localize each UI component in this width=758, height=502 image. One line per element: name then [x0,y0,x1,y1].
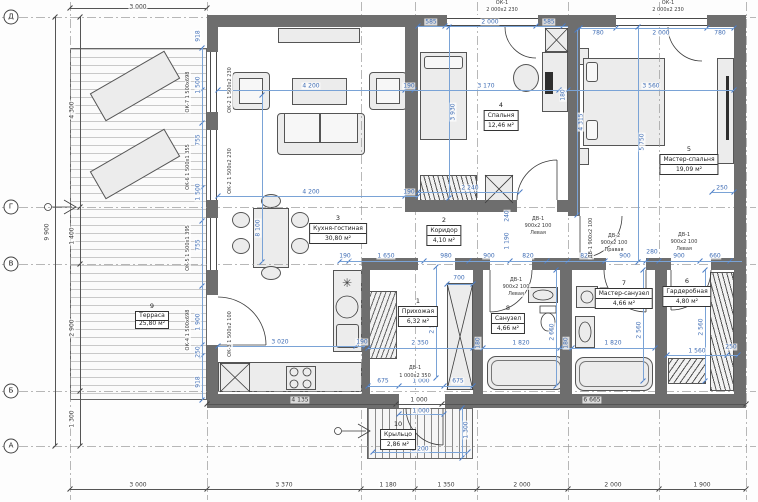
dimension-label: 1 560 [687,348,706,355]
dimension-label: 6 665 [582,397,601,404]
room-number: 4 [484,102,519,109]
dimension-label: 190 [355,339,368,346]
entry-arrow [342,424,370,438]
room-label-porch: 10 Крыльцо2,86 м² [380,421,416,450]
dimension-label: 8 100 [255,218,262,237]
dimension-line [712,192,734,193]
dimension-label: 675 [376,378,389,385]
room-label-terrace: 9 Терраса25,80 м² [135,303,169,329]
wardrobe-hangers [710,272,734,391]
dimension-line [202,48,203,400]
opening-label: Правая [603,247,624,253]
dimension-label: 900 [482,253,495,260]
room-area: 19,09 м² [660,165,717,174]
opening-label: ОК-6 1 500х1 355 [185,143,191,191]
dimension-label: 4 300 [69,100,76,119]
dimension-line [418,192,520,193]
opening-label: 2 000х2 230 [485,7,519,13]
room-name: Мастер-спальня [660,155,717,165]
opening-label: 1 000х2 350 [398,373,432,379]
dimension-label: 3 170 [476,83,495,90]
dimension-label: 1 350 [436,482,455,489]
washbasin [575,316,595,348]
dining-chair [261,266,281,280]
opening-label: ОК-2 1 500х2 230 [227,147,233,195]
dimension-line [207,404,746,405]
dimension-label: 900 [618,253,631,260]
dimension-label: 2 560 [636,320,643,339]
opening-label: Левая [529,230,547,236]
dimension-label: 4 200 [301,189,320,196]
dimension-label: 250 [715,185,728,192]
dimension-line [262,95,263,262]
dimension-label: 980 [439,253,452,260]
floor-plan: ✳ 9 Терраса25,80 м² 3 Кухня-гостиная30,8… [0,0,758,502]
dimension-line [447,284,473,285]
dimension-label: 1 900 [692,482,711,489]
sofa-seat [320,113,358,143]
room-name: Прихожая [399,307,437,317]
dimension-label: 3 930 [450,102,457,121]
dimension-label: 9 900 [44,222,51,241]
opening-label: 900х2 100 [524,223,553,229]
opening-label: ОК-4 1 500х698 [185,309,191,352]
dimension-label: 2 900 [69,318,76,337]
dimension-label: 190 [402,83,415,90]
room-name: Спальня [485,111,518,121]
dimension-label: 1 300 [69,409,76,428]
dimension-label: 1 500 [195,182,202,201]
room-area: 4,66 м² [596,299,652,308]
opening-label: ОК-5 1 500х1 395 [185,224,191,272]
dimension-label: 2 000 [480,19,499,26]
dimension-label: 2 000 [651,30,670,37]
room-name: Мастер-санузел [596,289,652,299]
opening-label: Левая [507,291,525,297]
dimension-label: 1 000 [409,397,428,404]
opening-label: Левая [675,246,693,252]
dimension-line [70,489,746,490]
dimension-label: 2 660 [549,322,556,341]
dimension-label: 918 [195,375,202,388]
room-number: 5 [659,146,718,153]
dimension-label: 1 000 [411,408,430,415]
dining-chair [291,212,309,228]
corner-cabinet [220,363,250,392]
pillow [586,120,598,140]
stove [286,366,316,390]
room-area: 4,10 м² [427,236,460,245]
entry-arrow [335,428,342,435]
axis-line-vertical [477,2,478,500]
window-ok1 [616,15,707,27]
dining-chair [232,212,250,228]
room-label-wardrobe: 6 Гардеробная4,80 м² [662,278,711,307]
dimension-line [218,346,365,347]
dimension-label: 3 370 [274,482,293,489]
dimension-label: 755 [195,133,202,146]
opening-label: ОК-3 1 500х2 100 [227,310,233,358]
room-number: 8 [491,305,525,312]
axis-line-vertical [746,2,747,500]
room-label-corridor: 2 Коридор4,10 м² [426,217,461,246]
dimension-label: 900 [672,253,685,260]
tall-cabinet [447,283,473,390]
dimension-label: 2 000 [512,482,531,489]
room-number: 9 [135,303,169,310]
desk-chair [513,64,539,92]
room-number: 10 [380,421,416,428]
room-area: 30,80 м² [310,234,366,243]
room-name: Санузел [492,314,524,324]
dining-chair [232,238,250,254]
opening-label: ДВ-1 [509,277,523,283]
axis-line-horizontal [2,207,756,208]
room-number: 7 [595,280,653,287]
dimension-label: 250 [724,344,737,351]
opening-label: ДВ-1 [531,216,545,222]
dimension-line [418,26,568,27]
axis-bubble: А [4,439,19,454]
opening-label: ОК-1 [661,0,675,6]
dimension-label: 2 350 [410,340,429,347]
dimension-label: 2 560 [698,317,705,336]
room-area: 12,46 м² [485,121,518,130]
dimension-label: 190 [338,253,351,260]
pillow [424,56,463,69]
dimension-line [368,348,655,349]
dimension-label: 250 [195,345,202,358]
dimension-label: 1 190 [504,231,511,250]
dimension-label: 820 [521,253,534,260]
dimension-label: 4 135 [290,397,309,404]
axis-line-vertical [659,2,660,500]
opening-label: ДВ-1 [408,365,422,371]
dimension-label: 4 200 [301,83,320,90]
room-number: 3 [309,215,367,222]
dimension-label: 780 [591,30,604,37]
terrace-door-opening [207,295,218,345]
dimension-label: 1 180 [378,482,397,489]
dimension-label: 180 [563,336,570,349]
dimension-label: 240 [504,209,511,222]
opening-label: ДВ-1 [677,232,691,238]
dimension-label: 5 750 [639,132,646,151]
axis-bubble: Б [4,384,19,399]
room-label-hallway: 1 Прихожая6,32 м² [398,298,438,327]
pillow [586,62,598,82]
room-label-master-bathroom: 7 Мастер-санузел4,66 м² [595,280,653,309]
dimension-label: 585 [424,19,437,26]
dimension-label: 3 000 [128,4,147,11]
dining-chair [291,238,309,254]
room-area: 25,80 м² [136,319,168,328]
dimension-label: 3 560 [641,83,660,90]
dimension-line [556,270,557,386]
axis-bubble: В [4,257,19,272]
dimension-label: 280 [645,249,658,256]
dimension-label: 1 900 [195,312,202,331]
axis-line-horizontal [2,391,756,392]
dimension-label: 4 315 [578,112,585,131]
axis-bubble: Д [4,10,19,25]
dimension-label: 675 [451,378,464,385]
opening-label: ДВ-2 [607,233,621,239]
bathtub [575,357,653,391]
dimension-label: 585 [542,19,555,26]
room-label-bathroom: 8 Санузел4,66 м² [491,305,525,334]
dimension-label: 1 820 [603,340,622,347]
dimension-label: 190 [402,189,415,196]
dimension-label: 780 [713,30,726,37]
window-ok2 [207,130,218,200]
room-name: Коридор [427,226,460,236]
room-area: 4,80 м² [663,297,710,306]
dimension-label: 3 020 [270,339,289,346]
dimension-label: 3 000 [128,482,147,489]
room-area: 6,32 м² [399,317,437,326]
dimension-line [218,90,734,91]
room-area: 4,66 м² [492,324,524,333]
room-area: 2,86 м² [381,440,415,449]
armchair-seat [239,78,263,104]
bathtub [487,356,565,390]
wardrobe-shelf [485,175,513,203]
dimension-label: 180 [560,88,567,101]
opening-label: 900х2 100 [600,240,629,246]
window-ok2 [207,52,218,112]
dimension-label: 180 [475,336,482,349]
room-name: Крыльцо [381,430,415,440]
axis-bubble: Г [4,200,19,215]
sofa-seat [284,113,320,143]
room-number: 2 [426,217,461,224]
opening-label: 900х2 100 [502,284,531,290]
tv-stand [278,28,360,43]
opening-label: ОК-2 1 500х2 230 [227,66,233,114]
opening-label: 900х2 100 [670,239,699,245]
dimension-label: 1 820 [511,340,530,347]
dimension-label: 1 650 [376,253,395,260]
dimension-label: 1 300 [463,420,470,439]
dimension-label: 1 500 [195,75,202,94]
cabinet [545,28,568,52]
dimension-label: 755 [195,238,202,251]
washbasin [528,287,558,303]
opening-label: ДВ-1 900х2 100 [588,217,594,260]
room-name: Гардеробная [663,287,710,297]
axis-line-vertical [361,2,362,500]
dimension-label: 1 400 [69,226,76,245]
opening-label: 2 000х2 230 [651,7,685,13]
dimension-label: 660 [708,253,721,260]
dimension-label: 2 240 [460,185,479,192]
dimension-line [80,17,81,446]
dimension-line [55,17,56,446]
dimension-line [667,355,738,356]
shoe-rack [668,358,706,384]
room-number: 6 [662,278,711,285]
opening-label: ОК-7 1 500х698 [185,71,191,114]
room-name: Кухня-гостиная [310,224,366,234]
room-label-bedroom: 4 Спальня12,46 м² [484,102,519,131]
dimension-label: 700 [452,275,465,282]
armchair-seat [376,78,400,104]
axis-line-horizontal [2,446,756,447]
room-number: 1 [398,298,438,305]
dimension-label: 918 [195,29,202,42]
dimension-line [368,386,473,387]
dining-table [253,208,289,268]
room-label-master-bedroom: 5 Мастер-спальня19,09 м² [659,146,718,175]
dimension-line [218,196,418,197]
opening-label: ОК-1 [495,0,509,6]
window-ok2 [207,218,218,270]
dimension-line [340,261,742,262]
tv [726,76,729,140]
room-label-kitchen-living: 3 Кухня-гостиная30,80 м² [309,215,367,244]
dimension-label: 2 000 [603,482,622,489]
